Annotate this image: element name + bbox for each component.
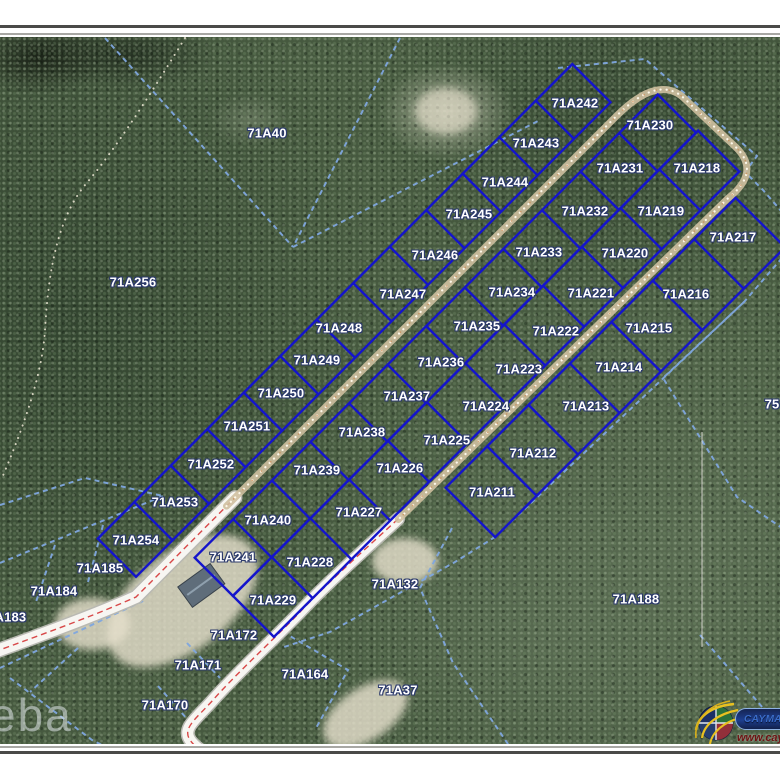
parcel-label-71A226: 71A226 (377, 461, 424, 476)
parcel-label-71A237: 71A237 (384, 389, 431, 404)
parcel-label-71A238: 71A238 (339, 425, 386, 440)
parcel-label-71A242: 71A242 (552, 96, 599, 111)
logo-banner: CAYMANLAN (735, 708, 780, 730)
parcel-label-71A241: 71A241 (210, 550, 257, 565)
parcel-label-71A37: 71A37 (378, 683, 417, 698)
parcel-label-71A233: 71A233 (516, 245, 563, 260)
logo-banner-text: CAYMANLAN (744, 714, 780, 725)
parcel-label-71A256: 71A256 (110, 275, 157, 290)
parcel-label-71A212: 71A212 (510, 446, 557, 461)
parcel-label-71A243: 71A243 (513, 136, 560, 151)
parcel-label-71A228: 71A228 (287, 555, 334, 570)
parcel-label-71A217: 71A217 (710, 230, 757, 245)
parcel-label-71A239: 71A239 (294, 463, 341, 478)
parcel-label-71A251: 71A251 (224, 419, 271, 434)
parcel-label-71A252: 71A252 (188, 457, 235, 472)
parcel-label-71A216: 71A216 (663, 287, 710, 302)
parcel-label-71A245: 71A245 (446, 207, 493, 222)
parcel-label-71A219: 71A219 (638, 204, 685, 219)
parcel-label-71A248: 71A248 (316, 321, 363, 336)
parcel-label-71A183: 71A183 (0, 610, 26, 625)
parcel-label-71A185: 71A185 (77, 561, 124, 576)
parcel-label-71A250: 71A250 (258, 386, 305, 401)
map-screenshot: 71A24271A24371A24471A24571A24671A24771A2… (0, 0, 780, 780)
parcel-label-71A223: 71A223 (496, 362, 543, 377)
parcel-label-71A230: 71A230 (627, 118, 674, 133)
parcel-label-71A132: 71A132 (372, 577, 419, 592)
parcel-label-71A240: 71A240 (245, 513, 292, 528)
parcel-label-71A184: 71A184 (31, 584, 78, 599)
parcel-label-71A249: 71A249 (294, 353, 341, 368)
map-canvas: 71A24271A24371A24471A24571A24671A24771A2… (0, 37, 780, 744)
frame-border-top-outer (0, 25, 780, 28)
parcel-label-71A244: 71A244 (482, 175, 529, 190)
parcel-label-71A171: 71A171 (175, 658, 222, 673)
parcel-label-71A234: 71A234 (489, 285, 536, 300)
parcel-label-71A236: 71A236 (418, 355, 465, 370)
parcel-label-71A164: 71A164 (282, 667, 329, 682)
parcel-label-71A227: 71A227 (336, 505, 383, 520)
parcel-label-71A214: 71A214 (596, 360, 643, 375)
parcel-label-71A188: 71A188 (613, 592, 660, 607)
parcel-label-71A224: 71A224 (463, 399, 510, 414)
parcel-label-71A40: 71A40 (247, 126, 286, 141)
logo-url-text: www.caym (737, 732, 780, 744)
parcel-label-75: 75 (765, 397, 780, 412)
parcel-label-71A172: 71A172 (211, 628, 258, 643)
frame-border-bottom-inner (0, 746, 780, 748)
parcel-label-71A246: 71A246 (412, 248, 459, 263)
parcel-label-71A232: 71A232 (562, 204, 609, 219)
parcel-label-71A229: 71A229 (250, 593, 297, 608)
parcel-label-71A220: 71A220 (602, 246, 649, 261)
parcel-label-71A253: 71A253 (152, 495, 199, 510)
frame-border-bottom-outer (0, 751, 780, 754)
watermark-text: eba (0, 688, 73, 742)
parcel-label-71A247: 71A247 (380, 287, 427, 302)
parcel-label-71A221: 71A221 (568, 286, 615, 301)
parcel-label-71A215: 71A215 (626, 321, 673, 336)
parcel-label-71A222: 71A222 (533, 324, 580, 339)
parcel-label-71A235: 71A235 (454, 319, 501, 334)
parcel-label-71A170: 71A170 (142, 698, 189, 713)
parcel-label-71A254: 71A254 (113, 533, 160, 548)
parcel-label-71A213: 71A213 (563, 399, 610, 414)
parcel-label-71A231: 71A231 (597, 161, 644, 176)
parcel-label-71A218: 71A218 (674, 161, 721, 176)
parcel-label-71A225: 71A225 (424, 433, 471, 448)
parcel-label-71A211: 71A211 (469, 485, 515, 500)
map-viewport[interactable]: 71A24271A24371A24471A24571A24671A24771A2… (0, 37, 780, 744)
frame-border-top-inner (0, 33, 780, 35)
